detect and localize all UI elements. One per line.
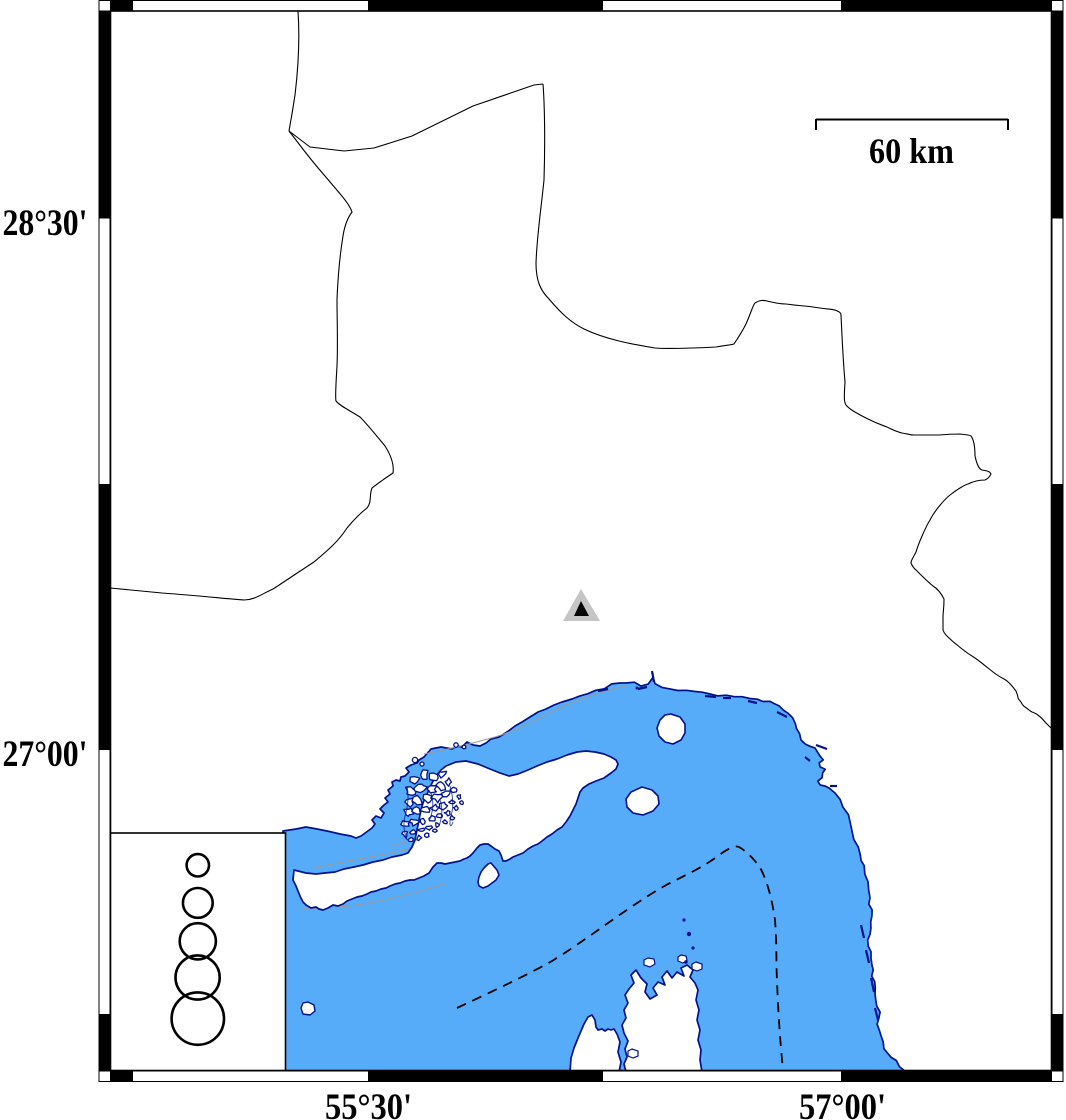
svg-text:57°00': 57°00' — [799, 1087, 886, 1120]
svg-text:55°30': 55°30' — [325, 1087, 412, 1120]
svg-text:28°30': 28°30' — [3, 203, 88, 244]
svg-text:60 km: 60 km — [869, 131, 954, 171]
svg-text:27°00': 27°00' — [3, 734, 88, 775]
